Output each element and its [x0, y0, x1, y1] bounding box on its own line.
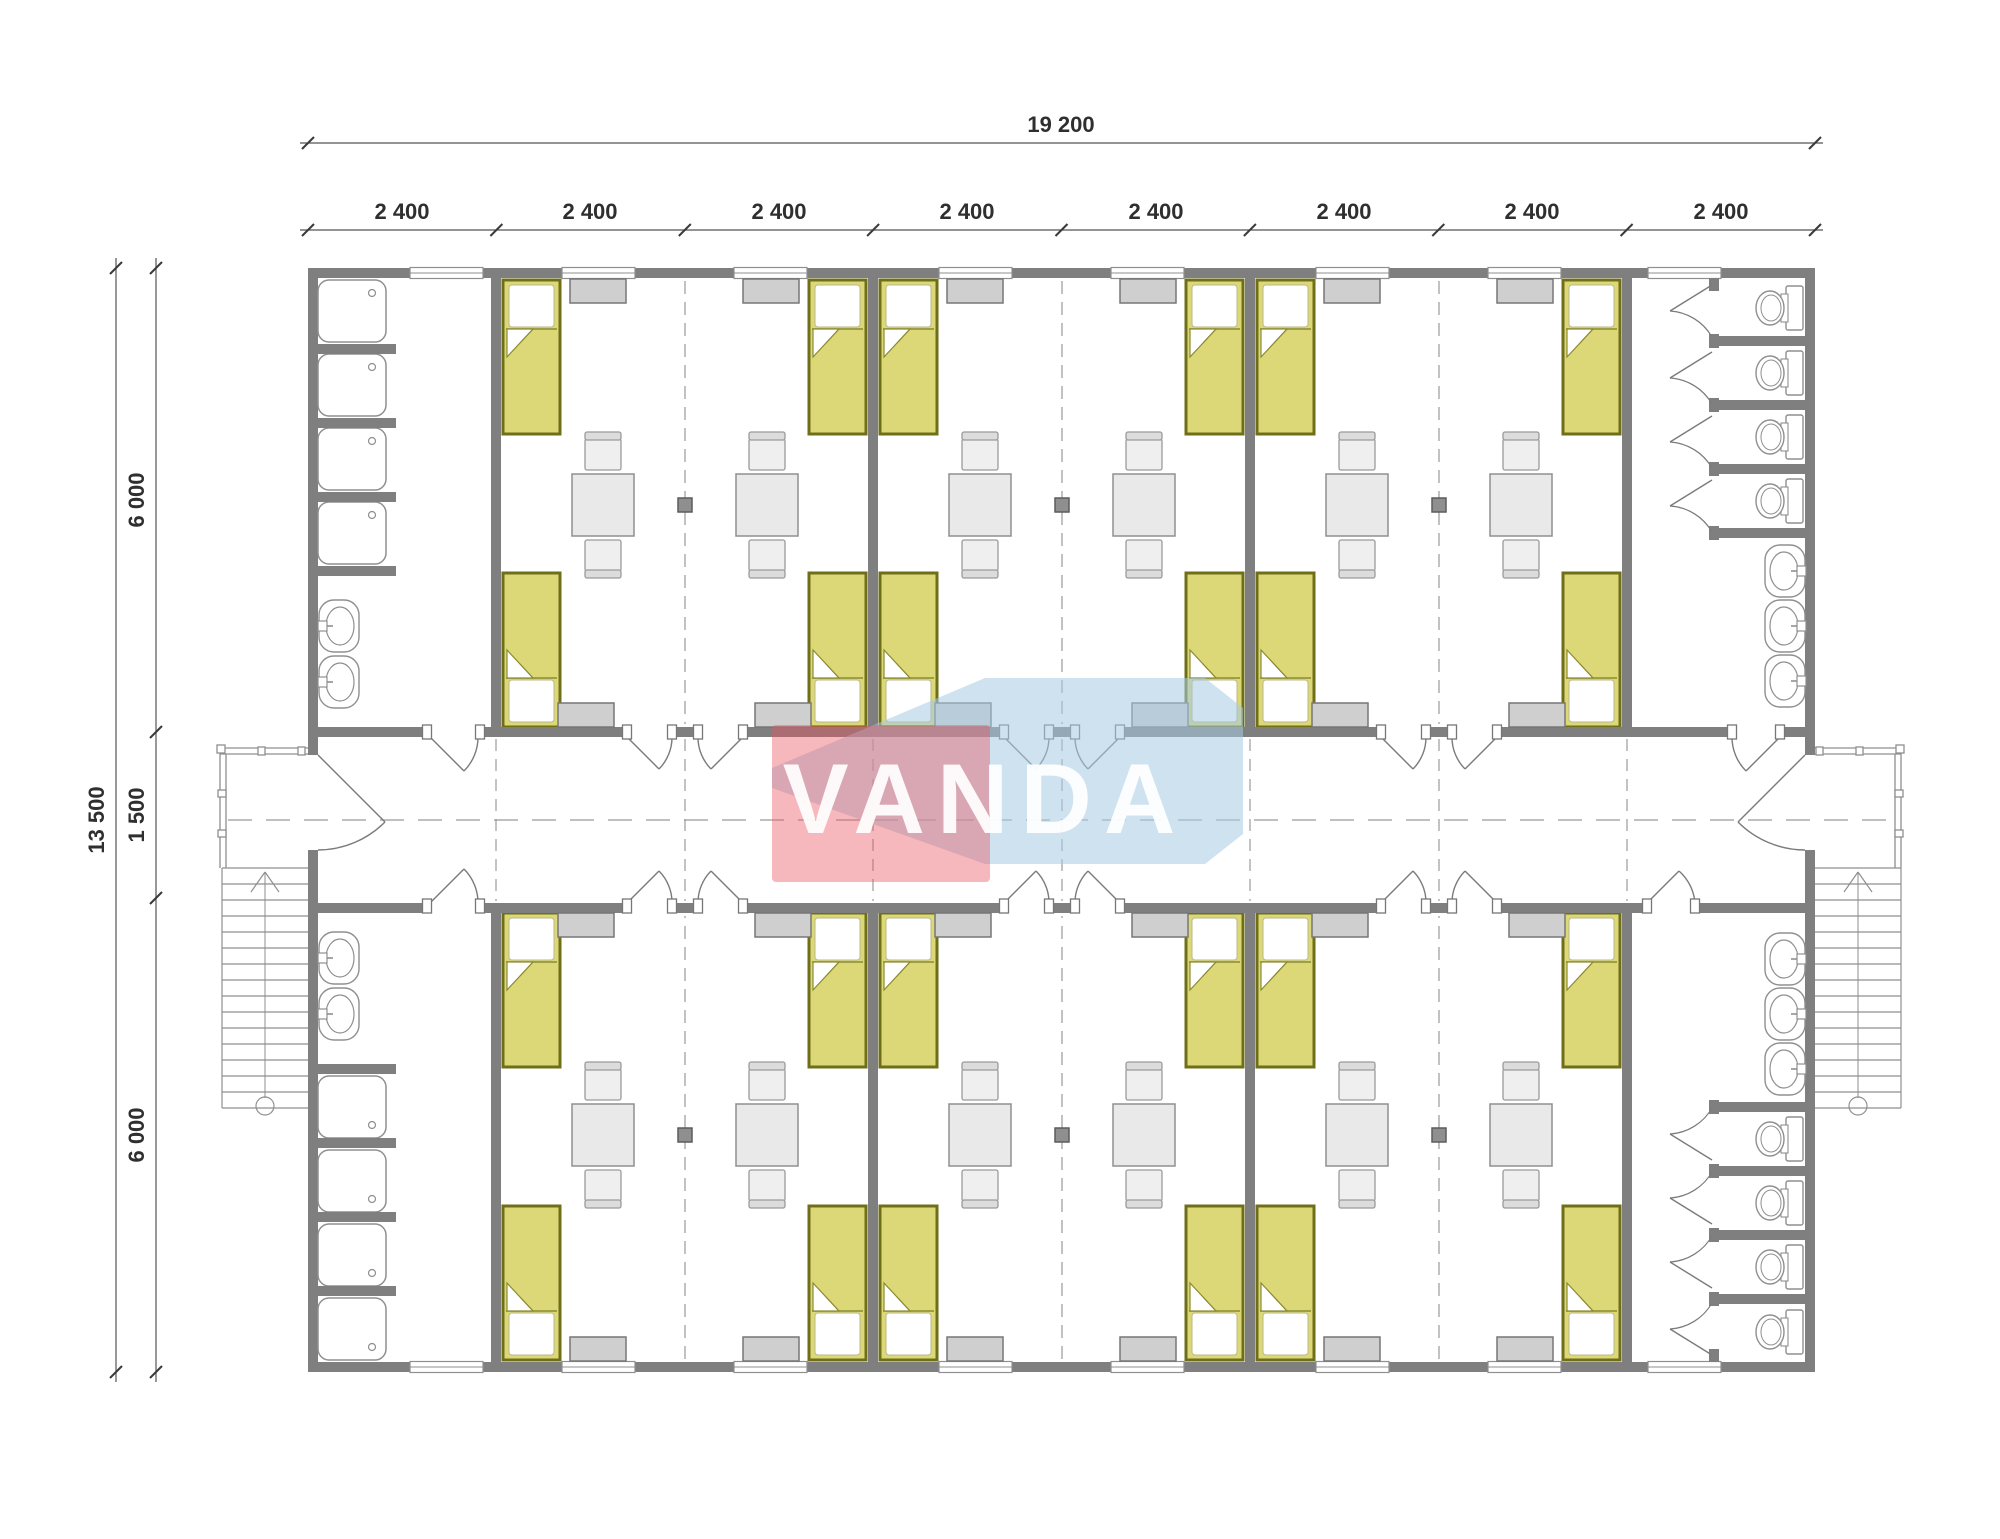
dimension-label-module: 2 400	[1128, 199, 1183, 224]
wall	[1805, 850, 1815, 913]
wardrobe	[755, 913, 811, 937]
wall	[308, 850, 318, 913]
dimension-label-total-width: 19 200	[1027, 112, 1094, 137]
dimension-label-module: 2 400	[1693, 199, 1748, 224]
dimension-label-segment: 1 500	[124, 787, 149, 842]
wall	[308, 727, 318, 755]
logo-text: VANDA	[783, 743, 1188, 854]
wardrobe	[935, 913, 991, 937]
floor-plan-drawing: 19 200 2 400 2 400 2 400 2 400 2 400 2 4…	[0, 0, 2000, 1539]
floor-plan-sheet: 19 200 2 400 2 400 2 400 2 400 2 400 2 4…	[0, 0, 2000, 1539]
dimension-label-module: 2 400	[374, 199, 429, 224]
wardrobe	[558, 913, 614, 937]
wardrobe	[1132, 913, 1188, 937]
dimension-label-module: 2 400	[562, 199, 617, 224]
dimension-label-segment: 6 000	[124, 472, 149, 527]
wardrobe	[755, 703, 811, 727]
dimension-label-total-height: 13 500	[84, 786, 109, 853]
corridor-wall-bottom	[318, 903, 1805, 913]
wardrobe	[1509, 703, 1565, 727]
wall	[1805, 727, 1815, 755]
dimension-label-module: 2 400	[751, 199, 806, 224]
wardrobe	[1312, 703, 1368, 727]
dimension-label-module: 2 400	[1504, 199, 1559, 224]
dimension-label-segment: 6 000	[124, 1107, 149, 1162]
wardrobe	[1312, 913, 1368, 937]
wardrobe	[1509, 913, 1565, 937]
wardrobe	[558, 703, 614, 727]
dimension-label-module: 2 400	[1316, 199, 1371, 224]
dimension-label-module: 2 400	[939, 199, 994, 224]
